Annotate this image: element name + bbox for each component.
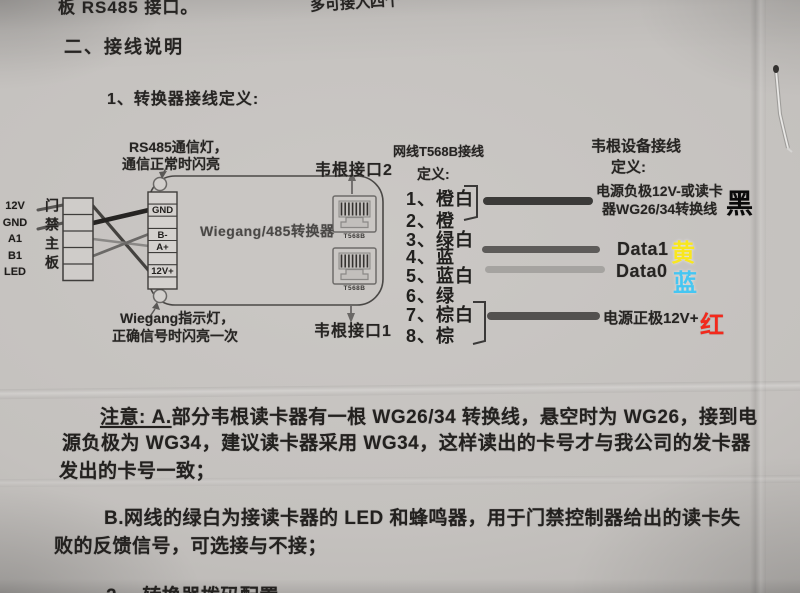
wiegand-port2-label: 韦根接口2 (315, 156, 393, 180)
wiegand-led-note-line2: 正确信号时闪亮一次 (112, 326, 238, 346)
note-a-prefix: 注意: A. (100, 407, 172, 428)
rs485-led-hole (154, 178, 167, 191)
t568b-title-line1: 网线T568B接线 (393, 141, 484, 160)
device-pos-label: 电源正极12V+ (603, 307, 698, 328)
bottom-partial-line: 2、 转换器拨码配置 (106, 581, 279, 593)
wire-color-blue-char: 蓝 (673, 263, 697, 298)
terminal-a-plus: A+ (148, 242, 177, 253)
note-b-text1: 网线的绿白为接读卡器的 LED 和蜂鸣器，用于门禁控制器给出的读卡失 (124, 508, 741, 529)
device-title-line1: 韦根设备接线 (591, 135, 681, 156)
wire-bar-black (483, 197, 593, 205)
note-b-line1: B.网线的绿白为接读卡器的 LED 和蜂鸣器，用于门禁控制器给出的读卡失 (104, 503, 741, 530)
wire-bar-power (487, 312, 600, 320)
wire-bar-data0 (485, 266, 605, 273)
document-photo-page: 板 RS485 接口。 多可接入四个 二、接线说明 1、转换器接线定义: (0, 0, 800, 593)
board-pin-gnd: GND (0, 217, 30, 229)
terminal-b-minus: B- (148, 230, 177, 241)
rj45-port2-label: T568B (333, 233, 376, 240)
terminal-gnd: GND (148, 205, 177, 216)
note-a-text1: 部分韦根读卡器有一根 WG26/34 转换线，悬空时为 WG26，接到电 (172, 407, 758, 428)
data1-label: Data1 (617, 239, 669, 260)
bracket-wires-7-8 (473, 302, 485, 344)
t568b-title-line2: 定义: (417, 164, 450, 184)
rj45-port1-label: T568B (333, 285, 376, 292)
access-board-block (63, 198, 93, 281)
rj45-port-2 (333, 196, 376, 232)
device-neg-label-line1: 电源负极12V-或读卡 (596, 181, 723, 201)
note-a-line3: 发出的卡号一致； (59, 456, 215, 483)
rs485-led-note-line2: 通信正常时闪亮 (122, 154, 220, 174)
rj45-port-1 (333, 248, 376, 284)
wiegand-port1-label: 韦根接口1 (314, 317, 392, 341)
note-b-line2: 败的反馈信号，可选接与不接； (54, 531, 327, 558)
staple (768, 62, 798, 157)
wire-color-red-char: 红 (700, 305, 724, 340)
board-pin-b1: B1 (0, 250, 30, 262)
wiegand-led-hole (154, 290, 167, 303)
board-pin-12v: 12V (0, 200, 30, 212)
wire-color-black-char: 黑 (726, 182, 753, 221)
note-b-prefix: B. (104, 508, 124, 529)
terminal-12v-plus: 12V+ (148, 266, 177, 277)
data0-label: Data0 (616, 261, 668, 282)
wire-bar-data1 (482, 246, 600, 253)
board-pin-a1: A1 (0, 233, 30, 245)
converter-label: Wiegang/485转换器 (200, 221, 334, 241)
device-neg-label-line2: 器WG26/34转换线 (602, 199, 717, 219)
note-a-line1: 注意: A.部分韦根读卡器有一根 WG26/34 转换线，悬空时为 WG26，接… (100, 402, 758, 429)
wire-item-8: 8、棕 (406, 322, 455, 348)
wiegand-led-note-line1: Wiegang指示灯， (120, 308, 234, 328)
note-a-line2: 源负极为 WG34，建议读卡器采用 WG34，这样读出的卡号才与我公司的发卡器 (62, 428, 751, 455)
board-pin-led: LED (0, 266, 30, 278)
access-board-label: 门禁主板 (42, 198, 62, 274)
device-title-line2: 定义: (611, 156, 646, 177)
